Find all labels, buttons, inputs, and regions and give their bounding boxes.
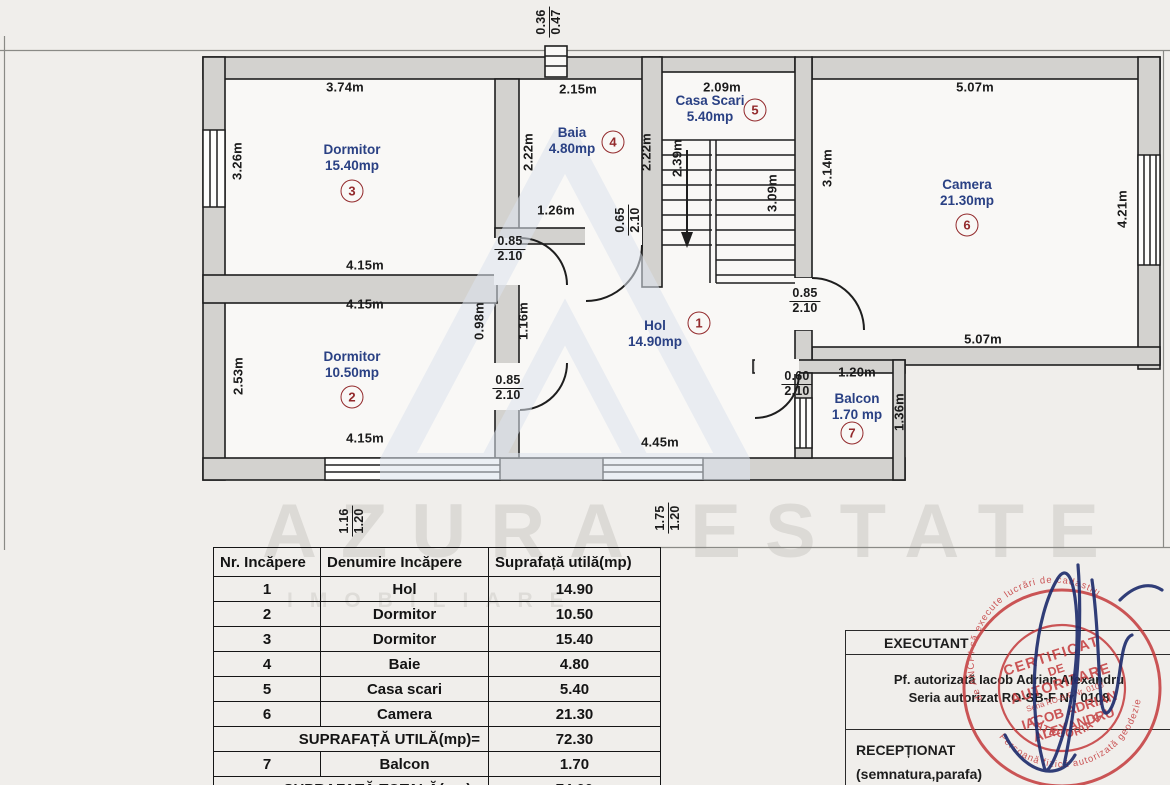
room-number-4: 4 — [602, 131, 625, 154]
frac-bottom: 2.10 — [789, 302, 820, 316]
dim-dorm2-door: 0.85 2.10 — [492, 374, 523, 402]
room-number-1: 1 — [688, 312, 711, 335]
frac-bottom: 1.20 — [353, 505, 367, 536]
subtotal-label: SUPRAFAȚĂ UTILĂ(mp)= — [214, 727, 489, 752]
dim-balcon-top: 1.20m — [838, 365, 876, 380]
room-areas-table: Nr. Incăpere Denumire Incăpere Suprafață… — [213, 547, 661, 785]
cell-nr: 4 — [214, 652, 321, 677]
dim-dorm2-bottom: 4.15m — [346, 431, 384, 446]
frac-bottom: 2.10 — [492, 389, 523, 403]
cell-nr: 5 — [214, 677, 321, 702]
dim-baia-left: 2.22m — [521, 133, 536, 171]
header-suprafata: Suprafață utilă(mp) — [489, 548, 661, 577]
dim-wall-098: 0.98m — [472, 302, 487, 340]
room-label-casa-scari: Casa Scari 5.40mp — [675, 93, 744, 125]
dim-baia-top: 2.15m — [559, 82, 597, 97]
room-name: Casa Scari — [675, 93, 744, 109]
room-area: 14.90mp — [628, 334, 682, 350]
room-area: 21.30mp — [940, 193, 994, 209]
dim-window-hol: 1.75 1.20 — [654, 502, 682, 533]
frac-bottom: 0.47 — [550, 6, 564, 37]
room-name: Dormitor — [324, 349, 381, 365]
cell-nr: 1 — [214, 577, 321, 602]
window-camera-right — [1138, 155, 1160, 265]
room-label-dormitor-2: Dormitor 10.50mp — [324, 349, 381, 381]
room-name: Dormitor — [324, 142, 381, 158]
dim-vent-size: 0.36 0.47 — [535, 6, 563, 37]
cell-area: 15.40 — [489, 627, 661, 652]
table-row: 2 Dormitor 10.50 — [214, 602, 661, 627]
cell-nr: 3 — [214, 627, 321, 652]
dim-dorm3-top: 3.74m — [326, 80, 364, 95]
room-name: Baia — [549, 125, 596, 141]
room-label-dormitor-3: Dormitor 15.40mp — [324, 142, 381, 174]
window-balcon-left — [795, 398, 812, 448]
header-nr: Nr. Incăpere — [214, 548, 321, 577]
table-row: 5 Casa scari 5.40 — [214, 677, 661, 702]
cell-name: Casa scari — [321, 677, 489, 702]
dim-hol-bottom: 4.45m — [641, 435, 679, 450]
room-name: Camera — [940, 177, 994, 193]
dim-baia-right: 2.22m — [639, 133, 654, 171]
scanned-floor-plan-page: AZURA ESTATE IMOBILIARE 0.36 0.47 0.65 2… — [0, 0, 1170, 785]
room-name: Balcon — [832, 391, 882, 407]
dim-camera-door: 0.85 2.10 — [789, 287, 820, 315]
cell-area: 4.80 — [489, 652, 661, 677]
dim-stair-right: 3.09m — [765, 174, 780, 212]
room-area: 5.40mp — [675, 109, 744, 125]
frac-bottom: 1.20 — [669, 502, 683, 533]
header-denumire: Denumire Incăpere — [321, 548, 489, 577]
dim-dorm3-door: 0.85 2.10 — [494, 235, 525, 263]
dim-wall-116: 1.16m — [516, 302, 531, 340]
dim-stair-left: 2.39m — [670, 139, 685, 177]
frac-top: 1.16 — [338, 505, 353, 536]
cell-nr: 7 — [214, 752, 321, 777]
watermark-logo-triangle — [380, 130, 750, 480]
total-label: SUPRAFAȚĂ TOTALĂ(mp)= — [214, 777, 489, 785]
table-row: 1 Hol 14.90 — [214, 577, 661, 602]
frac-bottom: 2.10 — [494, 250, 525, 264]
frac-top: 0.85 — [494, 235, 525, 250]
room-name: Hol — [628, 318, 682, 334]
cell-name: Balcon — [321, 752, 489, 777]
room-number-7: 7 — [841, 422, 864, 445]
cell-nr: 6 — [214, 702, 321, 727]
room-area: 1.70 mp — [832, 407, 882, 423]
dim-camera-left: 3.14m — [820, 149, 835, 187]
total-row: SUPRAFAȚĂ TOTALĂ(mp)= 74.00 — [214, 777, 661, 785]
dim-balcon-right: 1.36m — [892, 393, 907, 431]
dim-balcon-door: 0.60 2.10 — [781, 370, 812, 398]
room-area: 4.80mp — [549, 141, 596, 157]
cell-name: Dormitor — [321, 602, 489, 627]
cell-name: Camera — [321, 702, 489, 727]
frac-top: 1.75 — [654, 502, 669, 533]
frac-top: 0.36 — [535, 6, 550, 37]
vent-shaft — [545, 46, 567, 77]
cell-area: 1.70 — [489, 752, 661, 777]
subtotal-row: SUPRAFAȚĂ UTILĂ(mp)= 72.30 — [214, 727, 661, 752]
room-number-3: 3 — [341, 180, 364, 203]
subtotal-value: 72.30 — [489, 727, 661, 752]
cell-area: 5.40 — [489, 677, 661, 702]
cell-area: 21.30 — [489, 702, 661, 727]
dim-window-dorm2: 1.16 1.20 — [338, 505, 366, 536]
handwritten-signature — [950, 540, 1170, 785]
dim-dorm2-top: 4.15m — [346, 297, 384, 312]
room-label-hol: Hol 14.90mp — [628, 318, 682, 350]
frac-bottom: 2.10 — [629, 204, 643, 235]
window-dorm3-left — [203, 130, 225, 207]
room-number-2: 2 — [341, 386, 364, 409]
frac-top: 0.65 — [614, 204, 629, 235]
room-number-6: 6 — [956, 214, 979, 237]
dim-camera-bottom: 5.07m — [964, 332, 1002, 347]
dim-camera-right: 4.21m — [1115, 190, 1130, 228]
room-area: 15.40mp — [324, 158, 381, 174]
frac-bottom: 2.10 — [781, 385, 812, 399]
dim-baia-door: 0.65 2.10 — [614, 204, 642, 235]
cell-name: Baie — [321, 652, 489, 677]
room-label-camera: Camera 21.30mp — [940, 177, 994, 209]
room-label-balcon: Balcon 1.70 mp — [832, 391, 882, 423]
cell-nr: 2 — [214, 602, 321, 627]
frac-top: 0.85 — [789, 287, 820, 302]
cell-name: Dormitor — [321, 627, 489, 652]
dim-camera-top: 5.07m — [956, 80, 994, 95]
table-row: 3 Dormitor 15.40 — [214, 627, 661, 652]
room-label-baia: Baia 4.80mp — [549, 125, 596, 157]
table-row: 4 Baie 4.80 — [214, 652, 661, 677]
frac-top: 0.85 — [492, 374, 523, 389]
dim-dorm3-bottom: 4.15m — [346, 258, 384, 273]
cell-name: Hol — [321, 577, 489, 602]
total-value: 74.00 — [489, 777, 661, 785]
cell-area: 14.90 — [489, 577, 661, 602]
dim-dorm3-left: 3.26m — [230, 142, 245, 180]
frac-top: 0.60 — [781, 370, 812, 385]
table-header-row: Nr. Incăpere Denumire Incăpere Suprafață… — [214, 548, 661, 577]
table-row: 7 Balcon 1.70 — [214, 752, 661, 777]
dim-dorm2-left: 2.53m — [231, 357, 246, 395]
cell-area: 10.50 — [489, 602, 661, 627]
dim-baia-bottom: 1.26m — [537, 203, 575, 218]
room-number-5: 5 — [744, 99, 767, 122]
table-row: 6 Camera 21.30 — [214, 702, 661, 727]
room-area: 10.50mp — [324, 365, 381, 381]
